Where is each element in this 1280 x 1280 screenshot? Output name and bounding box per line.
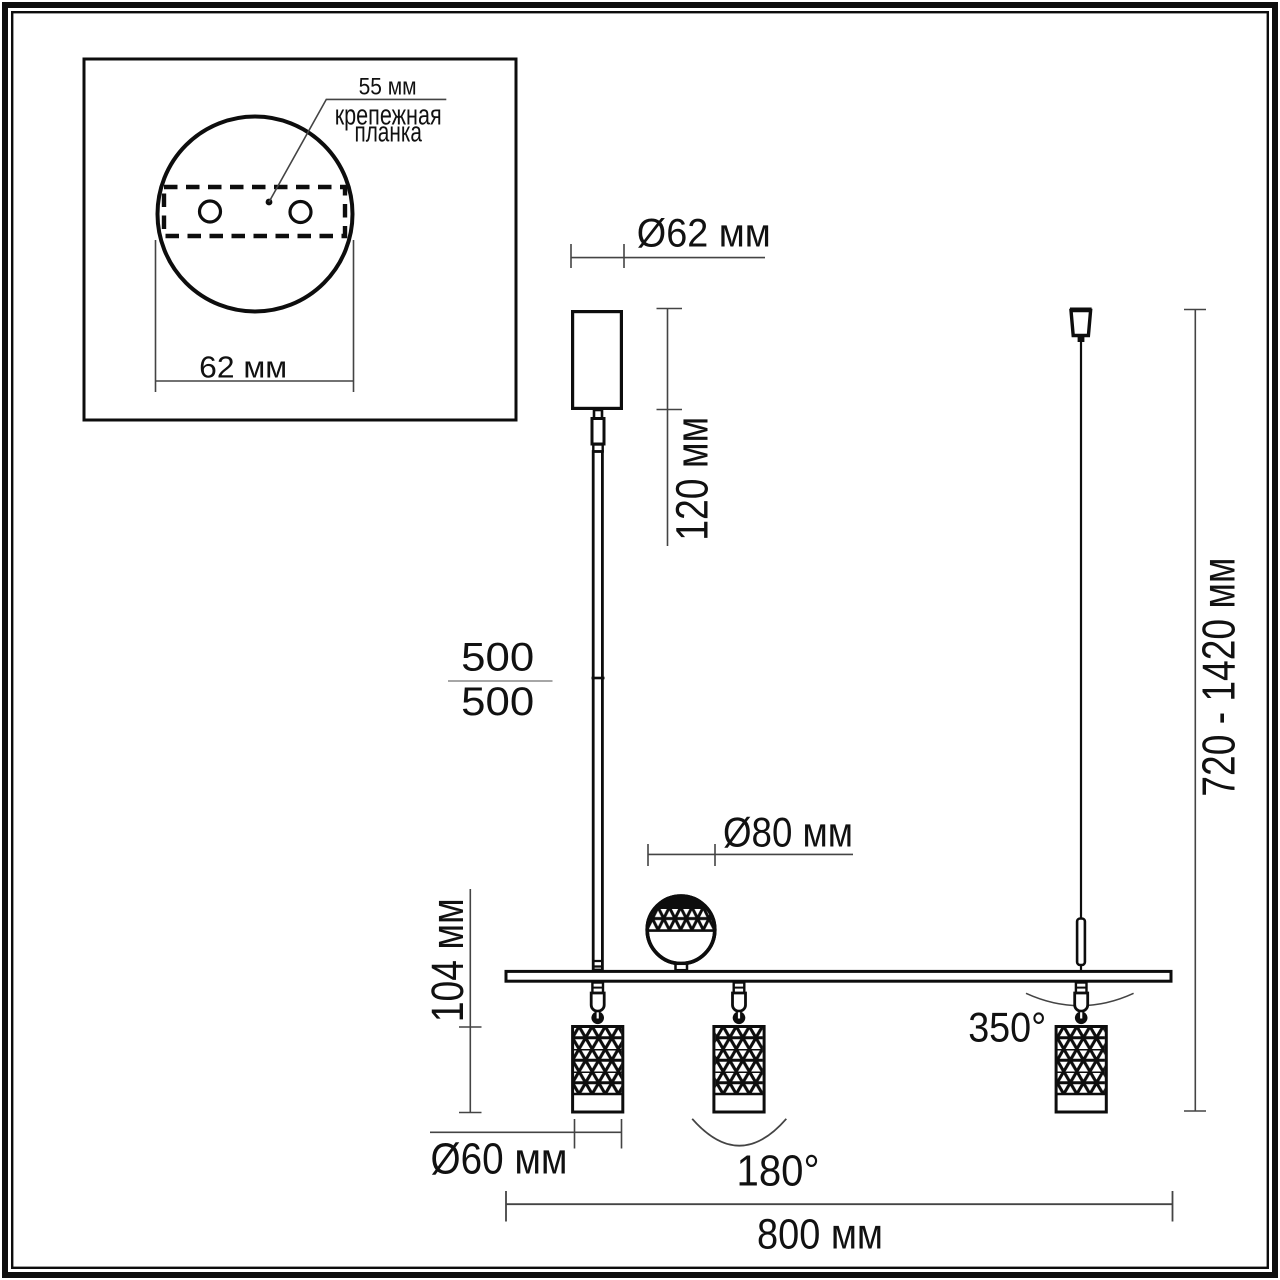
svg-text:55 мм: 55 мм bbox=[359, 74, 417, 101]
svg-text:500: 500 bbox=[461, 636, 534, 680]
svg-text:120 мм: 120 мм bbox=[667, 417, 718, 541]
svg-text:350°: 350° bbox=[968, 1004, 1046, 1051]
svg-text:720 - 1420 мм: 720 - 1420 мм bbox=[1193, 558, 1245, 797]
svg-text:Ø62 мм: Ø62 мм bbox=[637, 212, 771, 256]
svg-text:Ø80 мм: Ø80 мм bbox=[723, 809, 853, 856]
svg-text:Ø60 мм: Ø60 мм bbox=[431, 1135, 568, 1184]
svg-text:62 мм: 62 мм bbox=[199, 350, 287, 385]
svg-text:104 мм: 104 мм bbox=[422, 898, 473, 1022]
svg-text:180°: 180° bbox=[737, 1147, 820, 1196]
svg-text:планка: планка bbox=[354, 117, 422, 149]
svg-text:800 мм: 800 мм bbox=[757, 1211, 883, 1259]
svg-text:500: 500 bbox=[461, 680, 534, 724]
